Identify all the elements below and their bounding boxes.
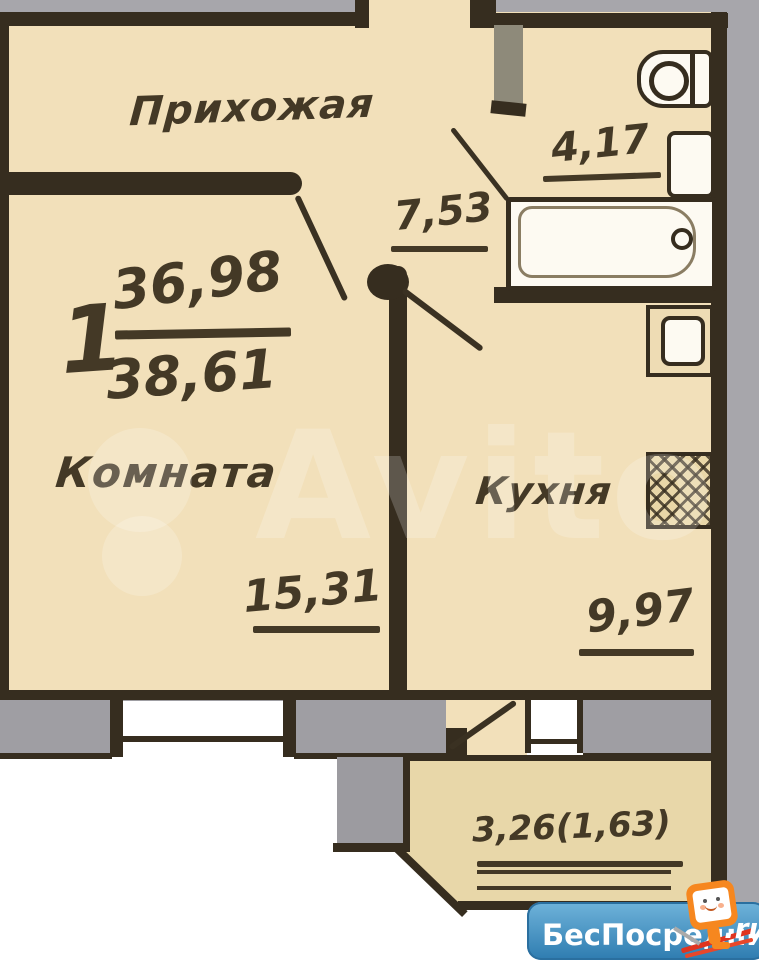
bathtub-drain-icon [671, 228, 693, 250]
room-window-mullion [123, 736, 283, 742]
bottom-strip-edge-a [0, 753, 112, 759]
toilet-bowl-icon [649, 61, 689, 101]
brand-tld: .ru [724, 912, 759, 945]
mascot-smile-icon [705, 900, 717, 911]
exterior-pillar [337, 757, 403, 847]
bottom-wall-strip-right [583, 700, 712, 757]
total-area: 38,61 [104, 342, 278, 408]
wall-top-left [0, 12, 368, 26]
exterior-right-band [723, 0, 759, 908]
balcony-edge-left [403, 757, 410, 852]
hallway-area: 7,53 [392, 187, 494, 237]
room-window-jamb-left [110, 700, 123, 757]
wall-left [0, 12, 9, 700]
bathroom-area: 4,17 [549, 119, 651, 169]
floorplan-image: Прихожая 7,53 4,17 1 36,98 38,61 Комната… [0, 0, 759, 960]
balcony-area-underline [477, 861, 683, 867]
kitchen-window-mullion [529, 739, 581, 744]
kitchen-window [527, 701, 583, 753]
hallway-label: Прихожая [128, 84, 375, 132]
room-window-jamb-right [283, 700, 296, 757]
mascot-eye-right-icon [716, 897, 720, 901]
mascot-cheek-right-icon [718, 903, 724, 908]
watermark-circle-2 [102, 516, 182, 596]
bathroom-sink-icon [667, 131, 715, 198]
entrance-jamb-left [355, 0, 369, 28]
entrance-jamb-right [470, 0, 496, 28]
kitchen-area: 9,97 [584, 584, 697, 641]
toilet-tank-line [690, 52, 695, 104]
balcony-area: 3,26(1,63) [471, 807, 671, 848]
room-window [113, 701, 293, 757]
kitchen-window-jamb-left [525, 700, 531, 753]
hallway-area-underline [391, 246, 488, 252]
kitchen-sink-basin [661, 316, 705, 366]
kitchen-door-hinge [367, 264, 409, 300]
balcony-hatch-bar [477, 870, 671, 890]
bathroom-wall-stub [494, 25, 523, 109]
entrance-opening [368, 0, 470, 28]
living-room-area-underline [253, 626, 380, 633]
bathtub-rim [518, 206, 696, 278]
wall-hallway-room [0, 172, 302, 195]
kitchen-window-jamb-right [577, 700, 583, 753]
watermark-text: Avito [255, 400, 720, 574]
kitchen-area-underline [579, 649, 694, 656]
wall-bottom [0, 690, 712, 700]
